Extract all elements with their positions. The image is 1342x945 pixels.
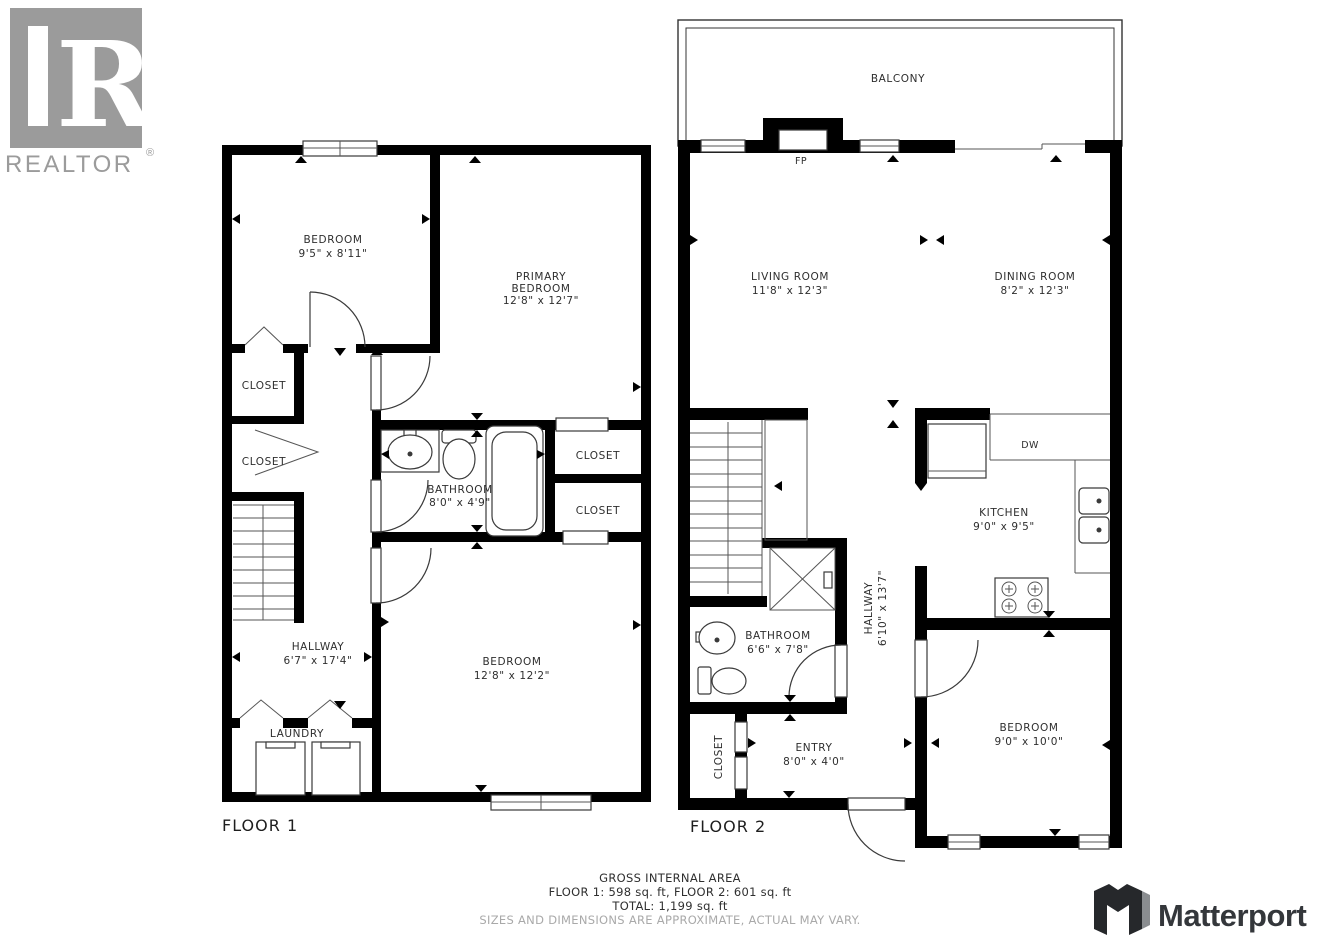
room-label-bathroom2: BATHROOM: [745, 630, 811, 642]
closet-door: [735, 722, 747, 752]
room-label-hallway2: HALLWAY: [863, 582, 875, 635]
floor2-stairs: [690, 420, 807, 596]
room-label-laundry: LAUNDRY: [270, 728, 324, 740]
realtor-logo: R REALTOR ®: [5, 8, 155, 178]
door-leaf: [915, 640, 927, 697]
door-arc: [310, 292, 365, 347]
dishwasher-label: DW: [1021, 440, 1039, 451]
total-area-line: TOTAL: 1,199 sq. ft: [611, 899, 727, 913]
dryer-detail: [321, 742, 350, 748]
matterport-wordmark: Matterport: [1158, 898, 1306, 933]
closet-sliding-door: [563, 531, 608, 544]
floor1-bathroom-fixtures: [381, 426, 543, 536]
shower-valve: [824, 572, 832, 588]
door-leaf: [371, 356, 381, 410]
room-label-hallway: HALLWAY: [292, 641, 345, 653]
room-label-dining: DINING ROOM: [995, 271, 1076, 283]
door-leaf: [371, 548, 381, 603]
floorplan-page: R REALTOR ®: [0, 0, 1342, 945]
room-label-bedroom3: BEDROOM: [999, 722, 1058, 734]
room-label-bedroom1: BEDROOM: [303, 234, 362, 246]
bifold-door: [308, 700, 352, 718]
floor1-stairs: [233, 505, 294, 620]
room-label-fireplace: FP: [795, 156, 807, 167]
room-label-bathroom: BATHROOM: [427, 484, 493, 496]
front-door-arc: [848, 804, 905, 861]
room-label-primary-2: BEDROOM: [511, 283, 570, 295]
footer-area-summary: GROSS INTERNAL AREA FLOOR 1: 598 sq. ft,…: [479, 871, 860, 927]
realtor-logo-r-icon: R: [56, 15, 155, 154]
toilet-tank: [698, 667, 711, 694]
floor2-bathroom-fixtures: [696, 622, 746, 694]
room-label-balcony: BALCONY: [871, 73, 925, 85]
front-door-leaf: [848, 798, 905, 810]
realtor-registered-mark: ®: [146, 147, 154, 159]
floor2-title: FLOOR 2: [690, 817, 766, 836]
room-dims-bathroom: 8'0" x 4'9": [429, 497, 491, 509]
room-label-living: LIVING ROOM: [751, 271, 829, 283]
pivot-door: [255, 430, 318, 475]
room-label-closet: CLOSET: [576, 505, 620, 517]
matterport-logo: Matterport: [1094, 884, 1306, 935]
kitchen-sink-basin: [1079, 488, 1109, 514]
room-label-closet: CLOSET: [242, 456, 286, 468]
room-dims-hallway2: 6'10" x 13'7": [877, 570, 889, 646]
room-dims-living: 11'8" x 12'3": [752, 285, 828, 297]
closet-door: [735, 757, 747, 789]
sliding-door-opening: [955, 140, 1085, 153]
room-dims-primary: 12'8" x 12'7": [503, 295, 579, 307]
door-arc: [376, 480, 428, 532]
room-label-closet2: CLOSET: [713, 735, 725, 779]
room-dims-bathroom2: 6'6" x 7'8": [747, 644, 809, 656]
floor1-walls: [222, 145, 651, 802]
dryer: [312, 742, 360, 795]
bifold-door: [245, 327, 283, 345]
gross-area-title: GROSS INTERNAL AREA: [599, 871, 741, 885]
stairwell-railing: [765, 420, 807, 540]
fridge: [928, 424, 986, 478]
floor2-shower: [770, 548, 835, 610]
toilet: [712, 668, 746, 694]
bathtub-basin: [492, 432, 537, 530]
room-dims-bedroom1: 9'5" x 8'11": [299, 248, 368, 260]
floor2-plan: BALCONY FP LIVING ROOM 11'8" x 12'3" DIN…: [678, 20, 1122, 861]
realtor-logo-bar: [28, 26, 48, 126]
room-label-entry: ENTRY: [796, 742, 833, 754]
floor1-title: FLOOR 1: [222, 816, 298, 835]
floor1-plan: BEDROOM 9'5" x 8'11" PRIMARY BEDROOM 12'…: [222, 141, 651, 835]
room-dims-bedroom2: 12'8" x 12'2": [474, 670, 550, 682]
matterport-m-icon: [1094, 884, 1142, 935]
closet-sliding-door: [556, 418, 608, 431]
realtor-wordmark: REALTOR: [5, 151, 134, 178]
matterport-m-icon-shade: [1142, 891, 1150, 929]
floor2-fireplace: [763, 118, 843, 153]
room-label-bedroom2: BEDROOM: [482, 656, 541, 668]
room-label-closet: CLOSET: [242, 380, 286, 392]
bifold-door: [240, 700, 283, 718]
toilet: [443, 439, 475, 479]
floor1-laundry-fixtures: [256, 742, 360, 795]
room-label-kitchen: KITCHEN: [979, 507, 1029, 519]
floors-area-line: FLOOR 1: 598 sq. ft, FLOOR 2: 601 sq. ft: [549, 885, 792, 899]
disclaimer-line: SIZES AND DIMENSIONS ARE APPROXIMATE, AC…: [479, 913, 860, 927]
door-arc: [376, 548, 431, 603]
room-label-closet: CLOSET: [576, 450, 620, 462]
room-dims-dining: 8'2" x 12'3": [1001, 285, 1070, 297]
door-arc: [921, 640, 978, 697]
room-label-primary-1: PRIMARY: [516, 271, 566, 283]
washer-detail: [266, 742, 295, 748]
room-dims-entry: 8'0" x 4'0": [783, 756, 845, 768]
door-arc: [376, 356, 430, 410]
door-leaf: [371, 480, 381, 532]
kitchen-sink-basin: [1079, 517, 1109, 543]
door-leaf: [835, 645, 847, 697]
washer: [256, 742, 305, 795]
room-dims-hallway: 6'7" x 17'4": [284, 655, 353, 667]
room-dims-kitchen: 9'0" x 9'5": [973, 521, 1035, 533]
room-dims-bedroom3: 9'0" x 10'0": [995, 736, 1064, 748]
